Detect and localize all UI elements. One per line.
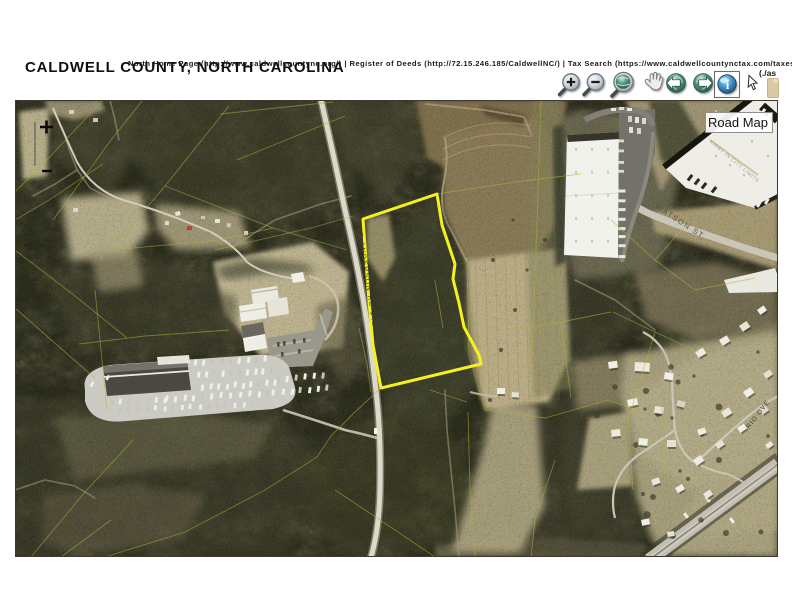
svg-text:i: i [726, 77, 730, 92]
